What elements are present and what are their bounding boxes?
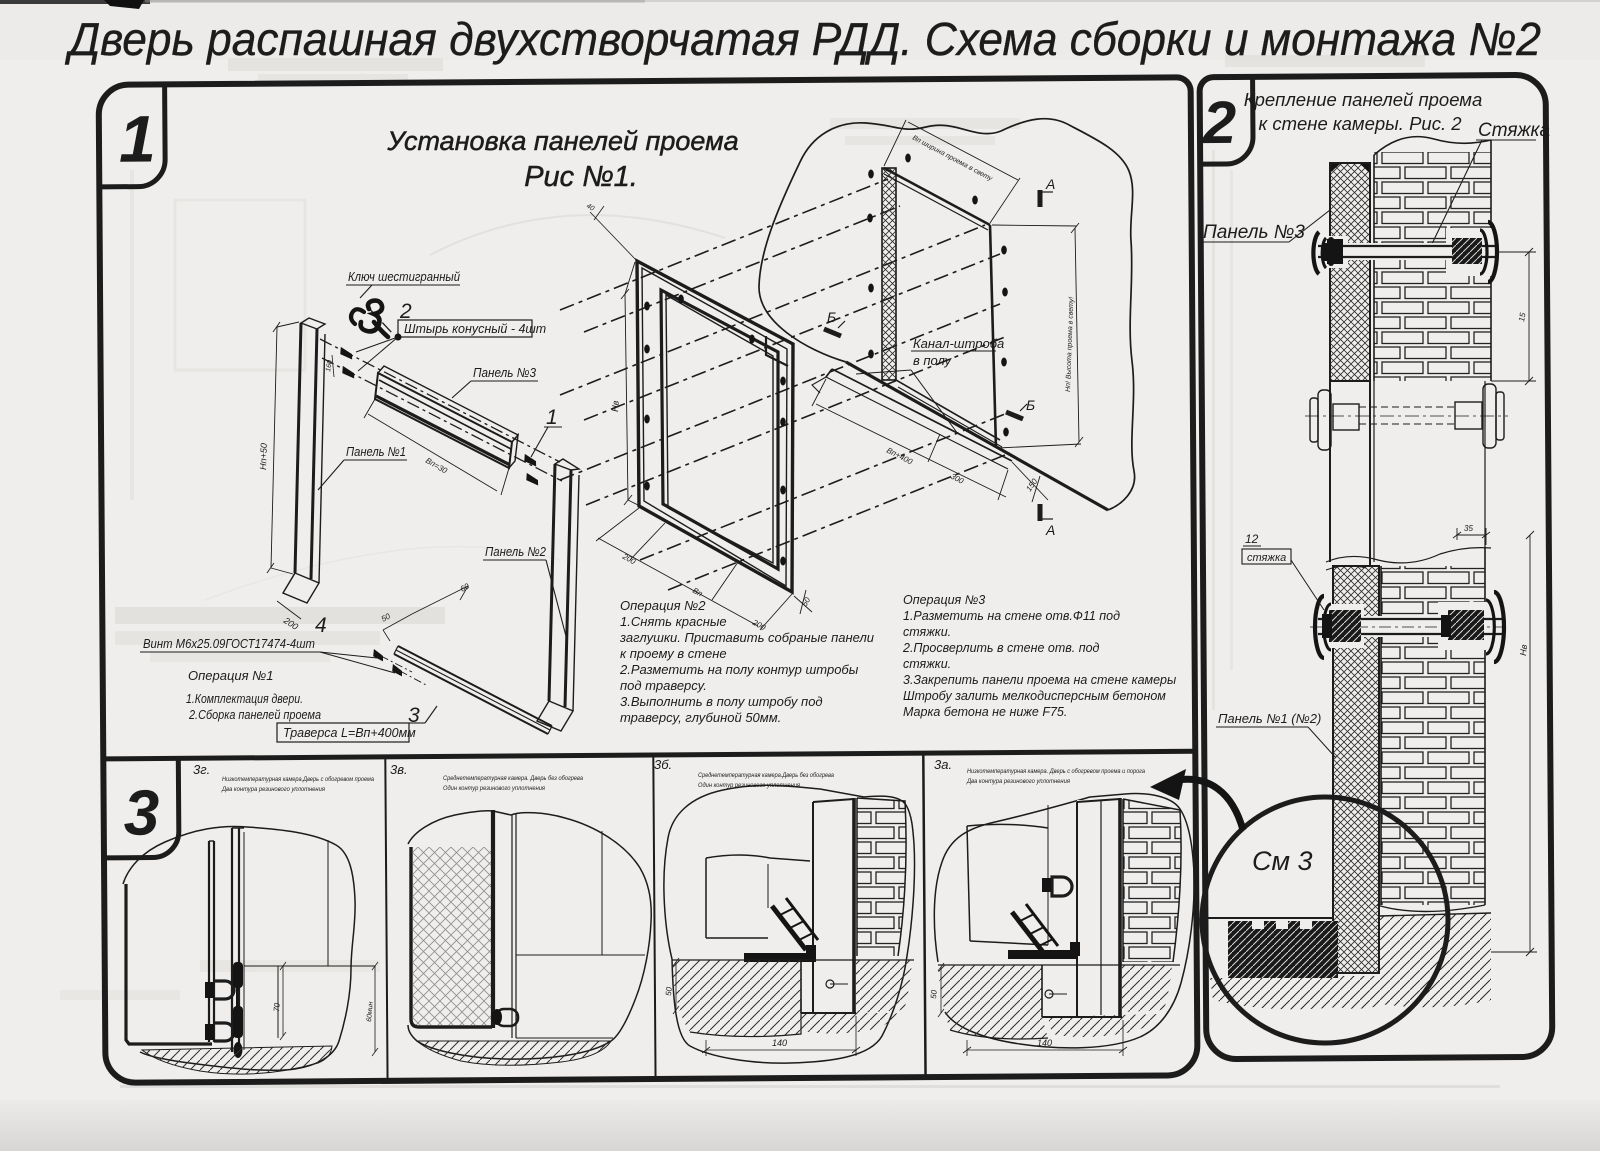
svg-text:к стене камеры. Рис. 2: к стене камеры. Рис. 2 — [1258, 113, 1462, 134]
svg-text:Винт М6х25.09ГОСТ17474-4шт: Винт М6х25.09ГОСТ17474-4шт — [143, 636, 315, 651]
svg-text:под траверсу.: под траверсу. — [620, 678, 707, 693]
svg-text:50: 50 — [664, 986, 674, 996]
svg-text:3.Закрепить панели проема на с: 3.Закрепить панели проема на стене камер… — [903, 673, 1176, 687]
svg-text:2.Сборка панелей проема: 2.Сборка панелей проема — [188, 707, 321, 722]
svg-text:1.Разметить на стене отв.Ф11 п: 1.Разметить на стене отв.Ф11 под — [903, 609, 1120, 623]
svg-text:12: 12 — [1245, 532, 1259, 546]
svg-text:Нв: Нв — [610, 400, 621, 412]
svg-text:Траверса L=Вп+400мм: Траверса L=Вп+400мм — [283, 726, 416, 740]
svg-text:140: 140 — [1037, 1038, 1052, 1048]
svg-text:140: 140 — [772, 1038, 787, 1048]
svg-text:Рис №1.: Рис №1. — [524, 161, 638, 193]
svg-text:Б: Б — [1026, 397, 1035, 413]
svg-text:Низкотемпературная камера.Двер: Низкотемпературная камера.Дверь с обогре… — [222, 775, 374, 783]
svg-text:Один контур резинового уплотне: Один контур резинового уплотнения — [443, 784, 545, 792]
svg-text:Среднетемпературная камера.Две: Среднетемпературная камера.Дверь без обо… — [698, 771, 834, 779]
svg-text:А: А — [1045, 176, 1055, 192]
svg-text:А: А — [1045, 522, 1055, 538]
svg-text:Низкотемпературная камера. Две: Низкотемпературная камера. Дверь с обогр… — [967, 767, 1145, 775]
svg-text:Панель №1 (№2): Панель №1 (№2) — [1218, 711, 1321, 726]
svg-text:2.Просверлить в стене отв. по: 2.Просверлить в стене отв. под — [902, 641, 1100, 655]
svg-text:Стяжка: Стяжка — [1478, 120, 1550, 141]
svg-text:Панель №1: Панель №1 — [346, 444, 406, 459]
svg-text:в полу: в полу — [913, 353, 953, 368]
svg-text:Установка панелей проема: Установка панелей проема — [386, 126, 738, 156]
svg-text:стяжка: стяжка — [1247, 552, 1286, 564]
svg-text:стяжки.: стяжки. — [903, 625, 951, 639]
svg-text:1: 1 — [119, 101, 156, 175]
svg-text:3г.: 3г. — [193, 762, 210, 777]
svg-text:1.Снять красные: 1.Снять красные — [620, 614, 727, 629]
svg-text:Операция №2: Операция №2 — [620, 598, 706, 613]
svg-text:Операция №1: Операция №1 — [188, 668, 273, 683]
svg-text:1: 1 — [546, 406, 558, 429]
svg-text:Канал-штроба: Канал-штроба — [913, 336, 1004, 351]
svg-text:Дверь распашная двухстворчатая: Дверь распашная двухстворчатая РДД. Схем… — [64, 13, 1541, 65]
svg-text:Б: Б — [827, 309, 836, 325]
svg-text:3: 3 — [123, 776, 159, 848]
svg-text:1.Комплектация двери.: 1.Комплектация двери. — [186, 691, 303, 706]
svg-text:к проему в стене: к проему в стене — [620, 646, 727, 661]
svg-text:Два контура резинового уплотне: Два контура резинового уплотнения — [221, 786, 325, 793]
svg-text:2.Разметить на полу контур штр: 2.Разметить на полу контур штробы — [619, 662, 859, 677]
svg-text:Операция №3: Операция №3 — [903, 593, 985, 607]
svg-text:Марка бетона не ниже F75.: Марка бетона не ниже F75. — [903, 705, 1067, 719]
svg-text:Штырь конусный - 4шт: Штырь конусный - 4шт — [404, 322, 546, 336]
svg-text:3в.: 3в. — [390, 762, 408, 777]
svg-text:70: 70 — [272, 1002, 282, 1012]
svg-text:3б.: 3б. — [654, 757, 672, 772]
svg-text:Нв: Нв — [1518, 644, 1529, 656]
svg-text:траверсу, глубиной 50мм.: траверсу, глубиной 50мм. — [620, 710, 781, 725]
svg-text:Штробу залить мелкодисперсным: Штробу залить мелкодисперсным бетоном — [903, 689, 1166, 703]
svg-text:35: 35 — [1464, 524, 1473, 533]
svg-text:Два контура резинового уплотне: Два контура резинового уплотнения — [966, 778, 1070, 785]
svg-text:Панель №3: Панель №3 — [1203, 222, 1305, 243]
svg-text:Один контур резинового уплотне: Один контур резинового уплотнения — [698, 781, 800, 789]
svg-text:Крепление панелей проема: Крепление панелей проема — [1244, 89, 1483, 110]
svg-text:Нп+50: Нп+50 — [258, 443, 269, 470]
svg-text:50: 50 — [929, 989, 939, 999]
svg-text:Среднетемпературная камера. Дв: Среднетемпературная камера. Дверь без об… — [443, 774, 583, 782]
svg-text:заглушки. Приставить собраные: заглушки. Приставить собраные панели — [619, 630, 874, 645]
svg-text:4: 4 — [315, 614, 327, 637]
svg-text:См 3: См 3 — [1252, 846, 1313, 876]
svg-text:3а.: 3а. — [934, 757, 952, 772]
svg-text:Панель №3: Панель №3 — [473, 365, 537, 380]
svg-text:Ключ шестигранный: Ключ шестигранный — [348, 269, 460, 284]
svg-text:стяжки.: стяжки. — [903, 657, 951, 671]
svg-text:2: 2 — [1202, 89, 1237, 156]
svg-text:Панель №2: Панель №2 — [485, 544, 547, 559]
svg-text:3.Выполнить в полу штробу под: 3.Выполнить в полу штробу под — [620, 694, 823, 709]
